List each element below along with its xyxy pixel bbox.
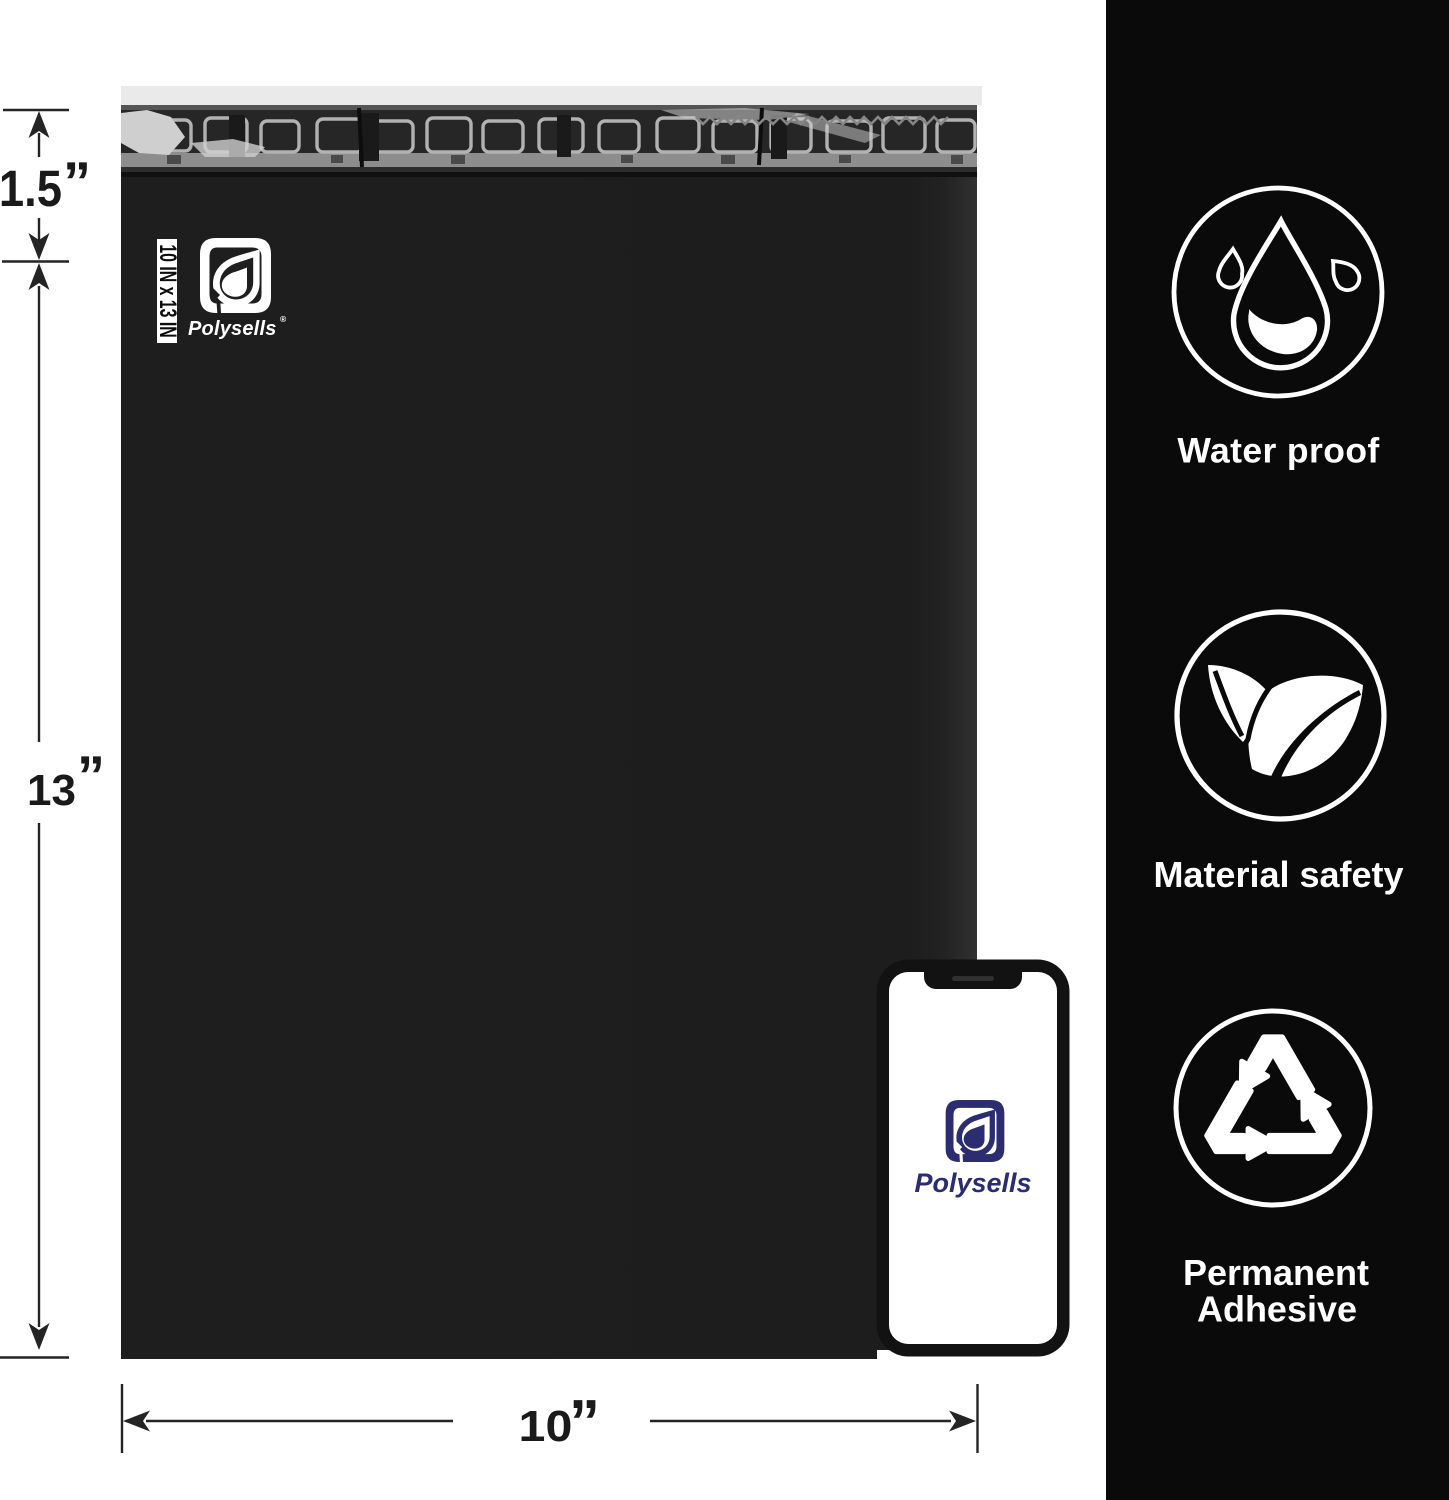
- svg-text:Material safety: Material safety: [1153, 854, 1403, 895]
- svg-text:”: ”: [77, 744, 105, 807]
- svg-text:”: ”: [569, 1388, 600, 1457]
- svg-text:Permanent: Permanent: [1183, 1252, 1369, 1293]
- svg-text:Water proof: Water proof: [1177, 431, 1379, 471]
- svg-text:10: 10: [519, 1401, 573, 1450]
- svg-text:13: 13: [27, 766, 76, 815]
- svg-text:1.5: 1.5: [0, 161, 62, 218]
- svg-text:Adhesive: Adhesive: [1197, 1289, 1357, 1330]
- svg-text:”: ”: [63, 150, 91, 213]
